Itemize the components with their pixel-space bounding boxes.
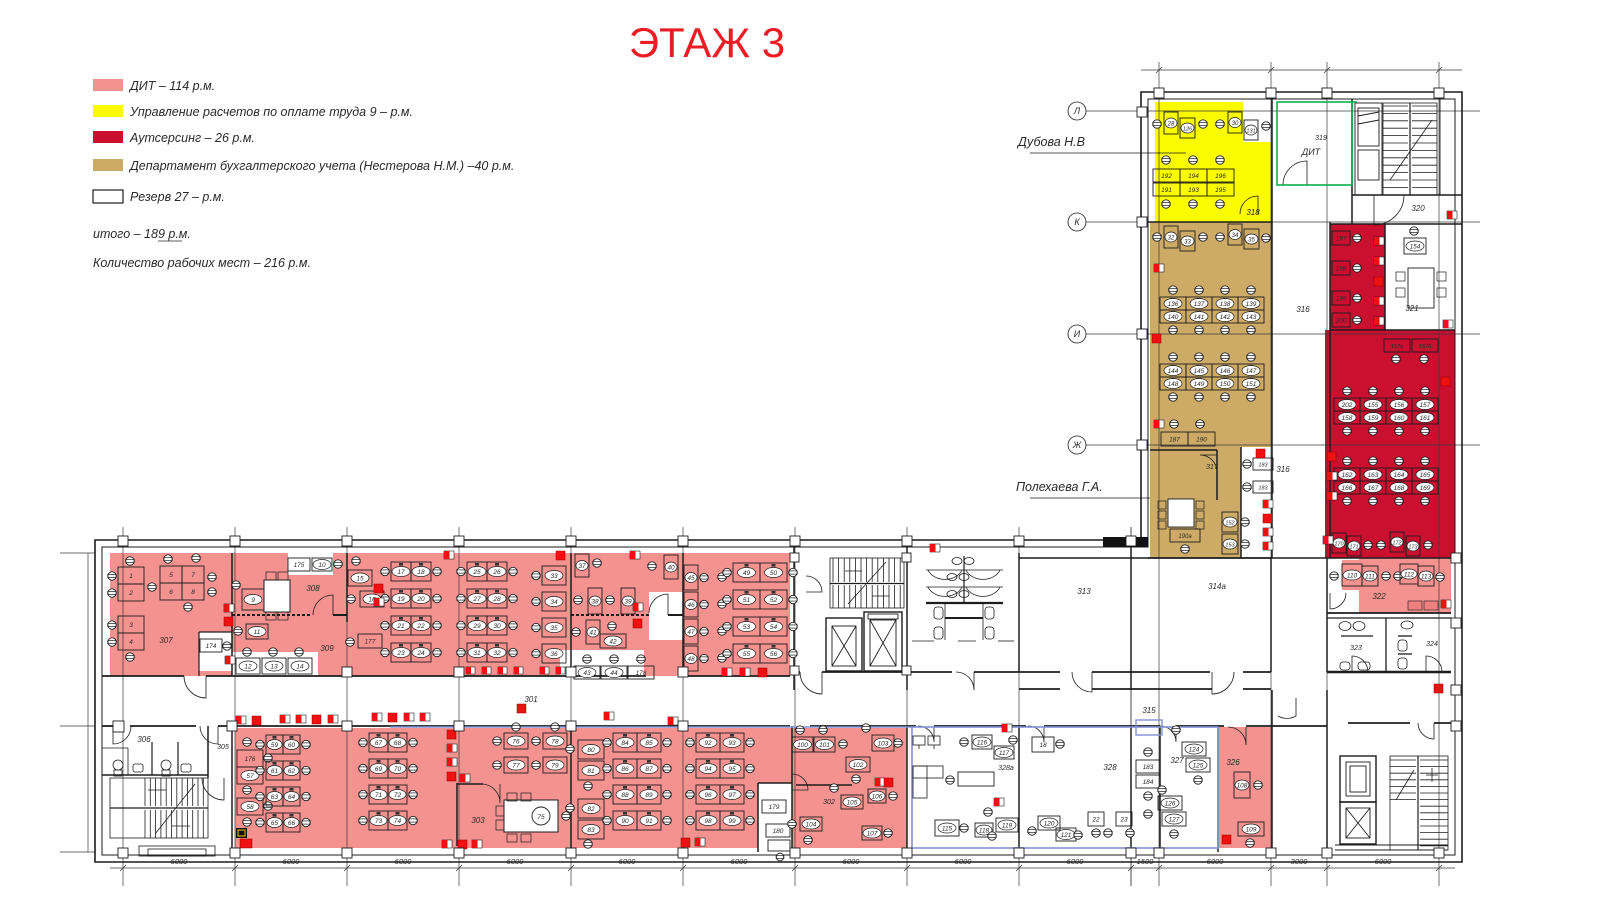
svg-text:145: 145 xyxy=(1194,368,1205,375)
svg-text:9: 9 xyxy=(251,597,255,604)
svg-text:55: 55 xyxy=(743,651,751,658)
svg-text:136: 136 xyxy=(1168,301,1179,308)
svg-text:321: 321 xyxy=(1405,304,1418,313)
svg-text:24: 24 xyxy=(416,650,425,657)
svg-text:14: 14 xyxy=(296,663,304,670)
svg-text:К: К xyxy=(1074,217,1080,227)
svg-text:22: 22 xyxy=(1091,816,1100,823)
svg-text:10: 10 xyxy=(318,562,326,569)
svg-text:46: 46 xyxy=(687,602,695,609)
svg-text:159: 159 xyxy=(1368,415,1379,422)
svg-text:110: 110 xyxy=(1347,572,1358,579)
svg-text:Аутсерсинг – 26 р.м.: Аутсерсинг – 26 р.м. xyxy=(129,131,255,145)
svg-text:103: 103 xyxy=(878,740,889,747)
svg-text:Резерв 27 – р.м.: Резерв 27 – р.м. xyxy=(130,190,225,204)
svg-text:168: 168 xyxy=(1394,485,1405,492)
svg-text:52: 52 xyxy=(770,597,778,604)
svg-text:197: 197 xyxy=(1336,235,1347,242)
svg-text:92: 92 xyxy=(704,740,712,747)
svg-text:174: 174 xyxy=(206,643,217,650)
svg-text:54: 54 xyxy=(770,624,778,631)
svg-text:195: 195 xyxy=(1215,187,1226,194)
svg-text:89: 89 xyxy=(645,792,653,799)
svg-text:112: 112 xyxy=(1404,571,1415,578)
svg-text:Дубова Н.В: Дубова Н.В xyxy=(1016,135,1085,149)
svg-text:32: 32 xyxy=(493,650,501,657)
svg-text:Полехаева Г.А.: Полехаева Г.А. xyxy=(1016,480,1103,494)
svg-text:35: 35 xyxy=(1248,237,1255,243)
svg-text:138: 138 xyxy=(1220,301,1231,308)
svg-text:23: 23 xyxy=(1119,816,1128,823)
svg-text:73: 73 xyxy=(375,818,383,825)
svg-text:320: 320 xyxy=(1411,204,1425,213)
svg-text:143: 143 xyxy=(1246,314,1257,321)
svg-text:41: 41 xyxy=(589,629,597,636)
svg-text:7: 7 xyxy=(191,572,195,579)
svg-text:146: 146 xyxy=(1220,368,1231,375)
svg-text:31: 31 xyxy=(473,650,481,657)
svg-text:88: 88 xyxy=(621,792,629,799)
svg-text:200: 200 xyxy=(1335,317,1347,324)
svg-text:327: 327 xyxy=(1170,756,1184,765)
svg-text:19: 19 xyxy=(397,596,405,603)
svg-text:23: 23 xyxy=(396,650,405,657)
svg-text:120: 120 xyxy=(1044,820,1055,827)
svg-text:36: 36 xyxy=(550,651,558,658)
svg-text:172: 172 xyxy=(1392,540,1401,546)
svg-text:6: 6 xyxy=(169,589,173,596)
svg-text:308: 308 xyxy=(306,584,320,593)
svg-text:313: 313 xyxy=(1077,587,1091,596)
svg-text:84: 84 xyxy=(621,740,629,747)
svg-text:2: 2 xyxy=(128,590,133,597)
svg-text:13: 13 xyxy=(270,663,278,670)
svg-text:307: 307 xyxy=(159,636,173,645)
svg-text:119: 119 xyxy=(1002,822,1013,829)
svg-text:157б: 157б xyxy=(1419,344,1432,350)
svg-text:160: 160 xyxy=(1394,415,1405,422)
svg-text:152: 152 xyxy=(1225,520,1234,526)
svg-text:176: 176 xyxy=(245,756,256,763)
svg-text:68: 68 xyxy=(394,740,402,747)
svg-text:77: 77 xyxy=(512,762,520,769)
svg-text:314а: 314а xyxy=(1208,582,1226,591)
svg-text:127: 127 xyxy=(1169,816,1180,823)
svg-text:итого – 189 р.м.: итого – 189 р.м. xyxy=(93,227,191,241)
svg-text:171: 171 xyxy=(1349,544,1358,550)
svg-text:162: 162 xyxy=(1342,472,1353,479)
svg-text:140: 140 xyxy=(1168,314,1179,321)
svg-text:317: 317 xyxy=(1206,464,1219,471)
svg-text:190а: 190а xyxy=(1178,534,1192,540)
svg-text:139: 139 xyxy=(1246,301,1257,308)
svg-text:44: 44 xyxy=(610,670,618,677)
svg-text:62: 62 xyxy=(288,768,296,775)
svg-text:104: 104 xyxy=(806,821,817,828)
svg-text:190: 190 xyxy=(1196,436,1207,443)
svg-text:153: 153 xyxy=(1225,542,1235,548)
svg-text:Количество рабочих мест –: Количество рабочих мест – 216 р.м. xyxy=(93,256,311,270)
svg-text:148: 148 xyxy=(1168,381,1179,388)
svg-text:316: 316 xyxy=(1276,465,1290,474)
svg-text:158: 158 xyxy=(1342,415,1353,422)
svg-text:33: 33 xyxy=(550,573,558,580)
svg-text:199: 199 xyxy=(1336,295,1347,302)
svg-text:144: 144 xyxy=(1168,368,1179,375)
svg-text:35: 35 xyxy=(550,625,558,632)
svg-text:87: 87 xyxy=(645,766,653,773)
svg-text:91: 91 xyxy=(645,818,653,825)
svg-text:302: 302 xyxy=(823,799,835,806)
svg-text:78: 78 xyxy=(551,738,559,745)
svg-text:64: 64 xyxy=(288,794,296,801)
svg-text:80: 80 xyxy=(587,747,595,754)
svg-text:17: 17 xyxy=(397,569,405,576)
svg-text:151: 151 xyxy=(1246,381,1257,388)
svg-text:4: 4 xyxy=(129,639,133,646)
svg-text:117: 117 xyxy=(999,750,1010,757)
svg-text:167: 167 xyxy=(1368,485,1379,492)
svg-text:94: 94 xyxy=(704,766,712,773)
svg-text:155: 155 xyxy=(1368,402,1379,409)
svg-text:202: 202 xyxy=(1341,402,1353,409)
svg-text:100: 100 xyxy=(797,742,808,749)
svg-text:183: 183 xyxy=(1143,764,1154,771)
svg-text:74: 74 xyxy=(394,818,402,825)
svg-text:63: 63 xyxy=(271,794,279,801)
svg-text:177: 177 xyxy=(365,638,376,645)
svg-text:90: 90 xyxy=(621,818,629,825)
svg-text:28: 28 xyxy=(492,596,501,603)
svg-text:96: 96 xyxy=(704,792,712,799)
svg-text:166: 166 xyxy=(1342,485,1353,492)
svg-text:8: 8 xyxy=(191,589,195,596)
svg-text:72: 72 xyxy=(394,792,402,799)
svg-text:26: 26 xyxy=(492,569,501,576)
svg-text:126: 126 xyxy=(1183,126,1193,132)
svg-text:1: 1 xyxy=(129,573,133,580)
svg-text:83: 83 xyxy=(587,827,595,834)
svg-text:86: 86 xyxy=(621,766,629,773)
svg-text:149: 149 xyxy=(1194,381,1205,388)
svg-text:11: 11 xyxy=(254,629,261,636)
svg-text:303: 303 xyxy=(471,816,485,825)
svg-text:161: 161 xyxy=(1420,415,1431,422)
svg-text:163: 163 xyxy=(1368,472,1379,479)
svg-text:22: 22 xyxy=(416,623,425,630)
svg-text:97: 97 xyxy=(728,792,736,799)
svg-text:37: 37 xyxy=(578,563,586,570)
svg-text:316: 316 xyxy=(1296,305,1310,314)
svg-text:118: 118 xyxy=(979,827,990,834)
svg-text:75: 75 xyxy=(537,814,545,821)
svg-text:180: 180 xyxy=(773,828,784,835)
svg-text:101: 101 xyxy=(819,742,830,749)
svg-text:66: 66 xyxy=(288,820,296,827)
svg-text:38: 38 xyxy=(591,598,599,605)
svg-text:107: 107 xyxy=(867,830,878,837)
svg-text:183: 183 xyxy=(1258,485,1268,491)
svg-text:111: 111 xyxy=(1365,573,1375,580)
svg-text:328а: 328а xyxy=(998,765,1014,772)
svg-text:47: 47 xyxy=(687,629,695,636)
svg-text:34: 34 xyxy=(550,599,558,606)
svg-text:Управление расчетов по опла: Управление расчетов по оплате труда 9 – … xyxy=(129,105,413,119)
svg-text:102: 102 xyxy=(853,762,864,769)
svg-text:328: 328 xyxy=(1103,763,1117,772)
svg-text:183: 183 xyxy=(1258,462,1268,468)
svg-text:5: 5 xyxy=(169,572,173,579)
svg-text:70: 70 xyxy=(394,766,402,773)
svg-text:324: 324 xyxy=(1426,641,1438,648)
svg-text:175: 175 xyxy=(294,562,305,569)
svg-text:184: 184 xyxy=(1143,779,1154,786)
svg-text:28: 28 xyxy=(1167,121,1175,127)
svg-text:141: 141 xyxy=(1194,314,1205,321)
svg-text:Л: Л xyxy=(1073,106,1081,116)
svg-text:194: 194 xyxy=(1188,173,1199,180)
svg-text:142: 142 xyxy=(1220,314,1231,321)
svg-text:27: 27 xyxy=(472,596,481,603)
svg-text:179: 179 xyxy=(769,804,780,811)
svg-text:61: 61 xyxy=(271,768,279,775)
svg-text:ЭТАЖ 3: ЭТАЖ 3 xyxy=(629,19,785,66)
svg-text:56: 56 xyxy=(770,651,778,658)
svg-text:124: 124 xyxy=(1189,746,1200,753)
svg-text:59: 59 xyxy=(271,742,279,749)
svg-text:81: 81 xyxy=(587,768,595,775)
svg-text:108: 108 xyxy=(1237,782,1248,789)
svg-text:ДИТ: ДИТ xyxy=(1301,147,1322,157)
svg-text:309: 309 xyxy=(320,644,334,653)
svg-text:15: 15 xyxy=(356,575,364,582)
svg-text:178: 178 xyxy=(636,670,647,677)
svg-text:150: 150 xyxy=(1220,381,1231,388)
svg-text:93: 93 xyxy=(728,740,736,747)
svg-text:319: 319 xyxy=(1315,135,1327,142)
svg-text:156: 156 xyxy=(1394,402,1405,409)
svg-text:306: 306 xyxy=(137,735,151,744)
svg-text:154: 154 xyxy=(1410,243,1421,250)
svg-text:45: 45 xyxy=(687,575,695,582)
svg-text:79: 79 xyxy=(551,762,559,769)
svg-text:157: 157 xyxy=(1420,402,1431,409)
svg-text:322: 322 xyxy=(1372,592,1386,601)
svg-text:99: 99 xyxy=(728,818,736,825)
svg-text:301: 301 xyxy=(524,695,537,704)
svg-text:165: 165 xyxy=(1420,472,1431,479)
svg-text:67: 67 xyxy=(375,740,383,747)
svg-text:147: 147 xyxy=(1246,368,1257,375)
svg-text:48: 48 xyxy=(687,656,695,663)
svg-text:193: 193 xyxy=(1188,187,1199,194)
svg-text:115: 115 xyxy=(942,825,953,832)
svg-text:И: И xyxy=(1074,329,1081,339)
svg-text:18: 18 xyxy=(417,569,425,576)
svg-text:169: 169 xyxy=(1420,485,1431,492)
svg-text:69: 69 xyxy=(375,766,383,773)
svg-text:105: 105 xyxy=(847,799,858,806)
svg-text:49: 49 xyxy=(743,570,751,577)
svg-text:137: 137 xyxy=(1194,301,1205,308)
svg-text:106: 106 xyxy=(872,793,883,800)
svg-text:57: 57 xyxy=(246,773,254,780)
svg-text:173: 173 xyxy=(1408,544,1418,550)
svg-text:109: 109 xyxy=(1246,826,1257,833)
svg-text:196: 196 xyxy=(1215,173,1226,180)
svg-text:50: 50 xyxy=(770,570,778,577)
svg-text:18: 18 xyxy=(1039,742,1047,749)
svg-text:58: 58 xyxy=(246,804,254,811)
svg-text:187: 187 xyxy=(1169,436,1180,443)
svg-text:39: 39 xyxy=(624,598,632,605)
svg-text:ДИТ – 114 р.м.: ДИТ – 114 р.м. xyxy=(128,79,215,93)
svg-text:30: 30 xyxy=(1232,121,1239,127)
svg-text:198: 198 xyxy=(1336,265,1347,272)
svg-text:71: 71 xyxy=(375,792,383,799)
svg-text:53: 53 xyxy=(743,624,751,631)
svg-text:98: 98 xyxy=(704,818,712,825)
svg-text:121: 121 xyxy=(1061,832,1072,839)
svg-text:43: 43 xyxy=(583,670,591,677)
svg-text:157а: 157а xyxy=(1391,344,1403,350)
svg-text:29: 29 xyxy=(472,623,481,630)
svg-text:116: 116 xyxy=(977,739,988,746)
svg-text:85: 85 xyxy=(645,740,653,747)
svg-text:40: 40 xyxy=(667,564,675,571)
svg-text:125: 125 xyxy=(1193,762,1204,769)
svg-text:318: 318 xyxy=(1246,208,1260,217)
svg-text:192: 192 xyxy=(1161,173,1172,180)
svg-text:82: 82 xyxy=(587,806,595,813)
svg-text:60: 60 xyxy=(288,742,296,749)
svg-text:Ж: Ж xyxy=(1072,440,1082,450)
svg-text:51: 51 xyxy=(743,597,751,604)
svg-text:30: 30 xyxy=(493,623,501,630)
svg-text:42: 42 xyxy=(609,638,617,645)
svg-text:34: 34 xyxy=(1232,233,1239,239)
svg-text:65: 65 xyxy=(271,820,279,827)
svg-text:126: 126 xyxy=(1165,800,1176,807)
svg-text:12: 12 xyxy=(244,663,252,670)
svg-text:3: 3 xyxy=(129,622,133,629)
svg-text:21: 21 xyxy=(396,623,405,630)
svg-text:326: 326 xyxy=(1226,758,1240,767)
svg-text:315: 315 xyxy=(1142,706,1156,715)
svg-text:95: 95 xyxy=(728,766,736,773)
svg-text:Департамент бухгалтерского у: Департамент бухгалтерского учета (Нестер… xyxy=(128,159,514,173)
svg-text:32: 32 xyxy=(1168,235,1175,241)
svg-text:25: 25 xyxy=(472,569,481,576)
svg-text:191: 191 xyxy=(1161,187,1172,194)
svg-text:323: 323 xyxy=(1350,645,1362,652)
svg-text:76: 76 xyxy=(512,738,520,745)
svg-text:164: 164 xyxy=(1394,472,1405,479)
svg-text:170: 170 xyxy=(1334,541,1344,547)
svg-text:305: 305 xyxy=(217,744,229,751)
svg-text:131: 131 xyxy=(1246,128,1255,134)
svg-text:20: 20 xyxy=(416,596,425,603)
svg-text:33: 33 xyxy=(1184,239,1191,245)
svg-text:113: 113 xyxy=(1421,573,1432,580)
